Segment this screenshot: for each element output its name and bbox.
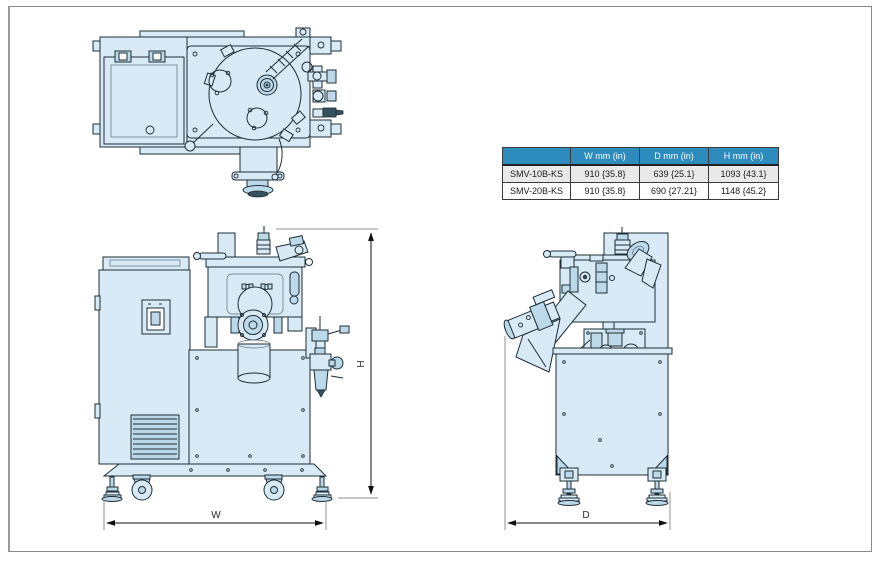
height-dimension-label: H — [356, 360, 367, 367]
top-view-drawing — [93, 28, 343, 197]
model-name-cell: SMV-20B-KS — [503, 183, 571, 200]
depth-value-cell: 639 {25.1} — [640, 165, 709, 183]
spec-table-header-w: W mm (in) — [571, 148, 640, 166]
spec-table-corner-cell — [503, 148, 571, 166]
width-value-cell: 910 {35.8} — [571, 165, 640, 183]
spec-table-header-row: W mm (in) D mm (in) H mm (in) — [503, 148, 779, 166]
catalog-page: W H — [0, 0, 882, 561]
spec-table-row-smv10b: SMV-10B-KS 910 {35.8} 639 {25.1} 1093 {4… — [503, 165, 779, 183]
dimension-w: W — [104, 500, 326, 530]
spec-table-row-smv20b: SMV-20B-KS 910 {35.8} 690 {27.21} 1148 {… — [503, 183, 779, 200]
dimension-spec-table: W mm (in) D mm (in) H mm (in) SMV-10B-KS… — [502, 147, 779, 200]
front-view-drawing: W H — [95, 226, 378, 530]
depth-dimension-label: D — [582, 510, 589, 521]
model-name-cell: SMV-10B-KS — [503, 165, 571, 183]
spec-table-header-d: D mm (in) — [640, 148, 709, 166]
spec-table-header-h: H mm (in) — [709, 148, 779, 166]
side-view-drawing: D — [498, 227, 672, 530]
width-dimension-label: W — [211, 510, 221, 521]
width-value-cell: 910 {35.8} — [571, 183, 640, 200]
technical-drawing-canvas: W H — [0, 0, 882, 561]
depth-value-cell: 690 {27.21} — [640, 183, 709, 200]
height-value-cell: 1148 {45.2} — [709, 183, 779, 200]
height-value-cell: 1093 {43.1} — [709, 165, 779, 183]
